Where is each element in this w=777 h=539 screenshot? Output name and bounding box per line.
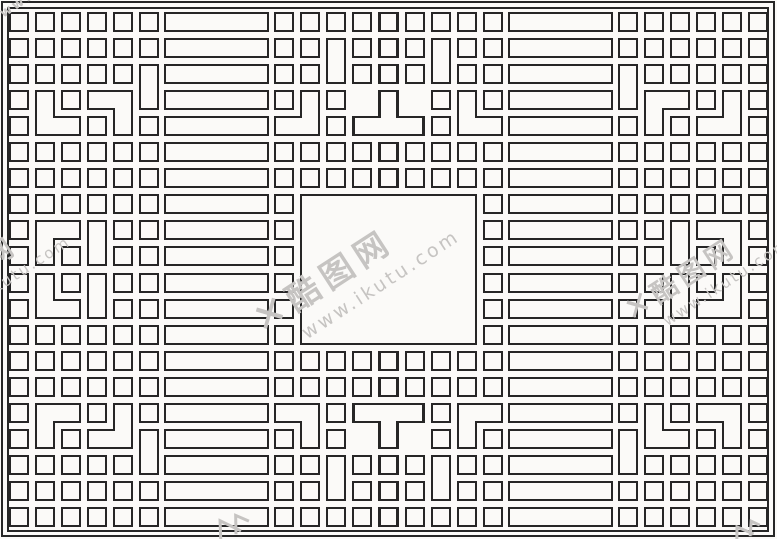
lattice-pattern-image: ✕ 酷图网 www.ikutu.com ✕ 酷图网 www.ikutu.com … [0,0,777,539]
lattice-pattern [0,0,777,539]
